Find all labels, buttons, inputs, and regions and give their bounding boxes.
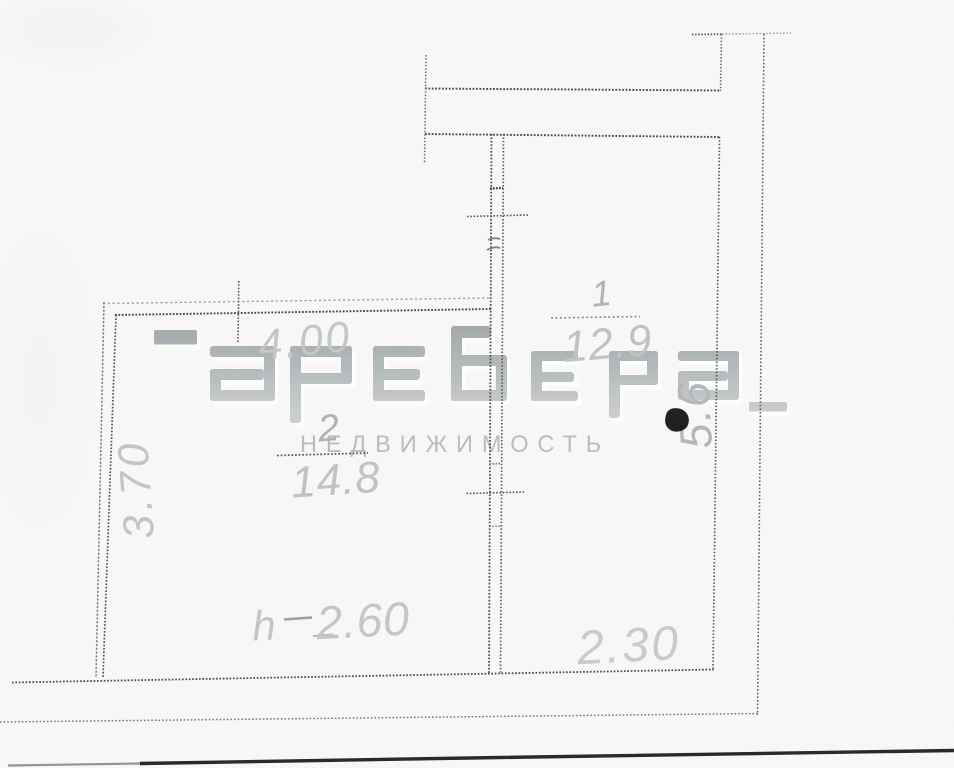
svg-text:1: 1 — [589, 272, 613, 315]
svg-text:2: 2 — [315, 407, 341, 451]
svg-text:2.30: 2.30 — [575, 617, 682, 675]
svg-text:14.8: 14.8 — [289, 453, 382, 508]
svg-text:2.60: 2.60 — [314, 591, 411, 649]
svg-text:3.70: 3.70 — [109, 438, 164, 541]
svg-text:12.9: 12.9 — [561, 316, 655, 373]
svg-text:h: h — [251, 601, 277, 649]
svg-text:4.00: 4.00 — [256, 313, 354, 371]
